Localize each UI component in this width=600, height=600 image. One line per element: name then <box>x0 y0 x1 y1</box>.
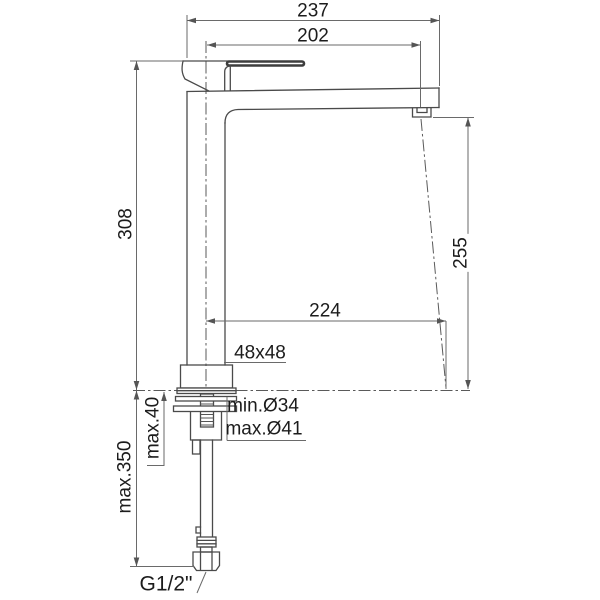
faucet-outline <box>177 61 439 394</box>
faucet-line-art <box>0 0 600 600</box>
dim-308-label: 308 <box>117 208 136 240</box>
leader-g12 <box>197 572 206 593</box>
spout-underside <box>225 108 439 124</box>
dim-min-diameter-label: min.Ø34 <box>227 397 299 416</box>
dim-202-label: 202 <box>297 27 329 46</box>
hose-neck <box>201 547 213 552</box>
dim-max-diameter-label: max.Ø41 <box>225 420 302 439</box>
centerlines <box>133 41 470 427</box>
bracket-tab <box>193 440 201 454</box>
dim-308-lines <box>130 61 183 390</box>
hose-crimp-collar <box>197 537 216 547</box>
water-stream-line <box>421 119 446 388</box>
dim-237-label: 237 <box>297 2 329 21</box>
lever-blade <box>227 62 304 66</box>
hose-hex-nut <box>193 552 220 571</box>
dim-48x48-label: 48x48 <box>234 344 286 363</box>
hex-nut-facets <box>201 552 213 570</box>
dim-max350-label: max.350 <box>116 441 135 514</box>
dimension-lines <box>130 15 474 593</box>
dim-224-label: 224 <box>309 302 341 321</box>
dim-202-lines <box>207 41 421 107</box>
dim-max40-label: max.40 <box>144 397 163 459</box>
dim-g12-label: G1/2" <box>140 574 193 595</box>
hose-clip <box>196 527 201 533</box>
head-left-edge <box>182 61 209 91</box>
technical-drawing-canvas: 237 202 308 255 224 48x48 min.Ø34 max.Ø4… <box>0 0 600 600</box>
dim-255-label: 255 <box>451 234 472 272</box>
nozzle-notch <box>417 108 427 113</box>
lever-stem-left <box>225 66 230 91</box>
